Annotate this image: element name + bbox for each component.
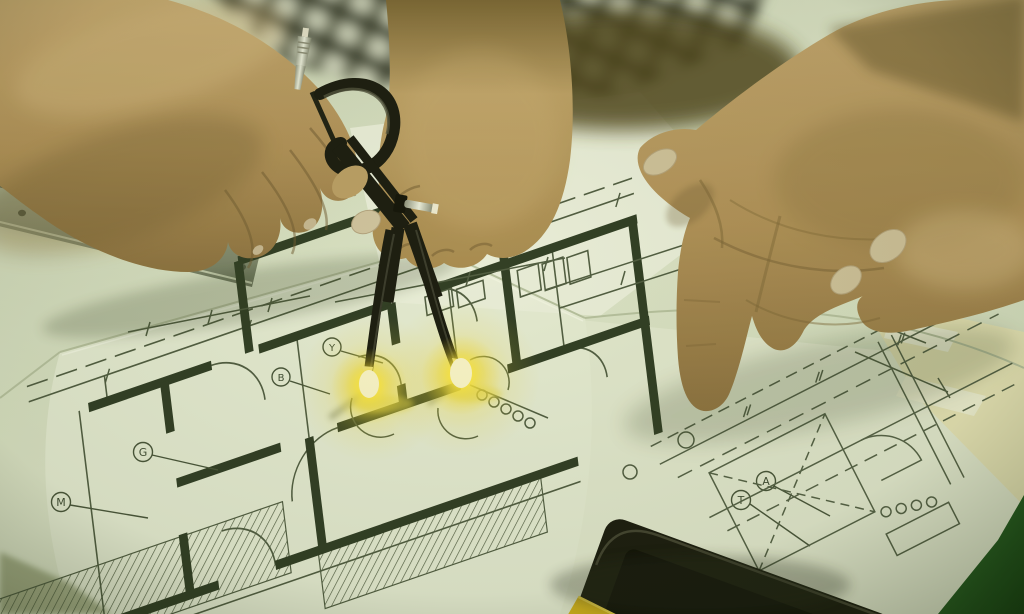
vignette	[0, 0, 1024, 614]
photo-blueprint-hands: G M B Y A T	[0, 0, 1024, 614]
photo-canvas: G M B Y A T	[0, 0, 1024, 614]
